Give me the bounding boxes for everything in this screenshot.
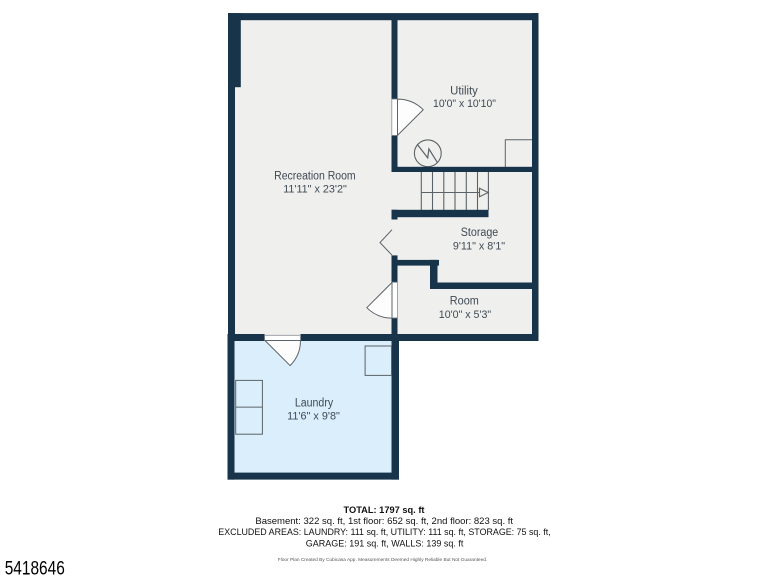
svg-text:10'0" x 5'3": 10'0" x 5'3" (439, 309, 491, 321)
svg-text:10'0" x 10'10": 10'0" x 10'10" (433, 98, 496, 110)
svg-text:Floor Plan Created By Cubicasa: Floor Plan Created By Cubicasa App. Meas… (278, 557, 487, 562)
svg-text:9'11" x 8'1": 9'11" x 8'1" (453, 240, 505, 252)
svg-text:TOTAL: 1797 sq. ft: TOTAL: 1797 sq. ft (344, 505, 425, 515)
svg-text:Basement: 322 sq. ft, 1st floo: Basement: 322 sq. ft, 1st floor: 652 sq.… (255, 516, 513, 526)
svg-text:Utility: Utility (450, 86, 478, 98)
svg-text:5418646: 5418646 (5, 558, 65, 576)
svg-text:EXCLUDED AREAS: LAUNDRY: 111 s: EXCLUDED AREAS: LAUNDRY: 111 sq. ft, UTI… (218, 527, 550, 537)
svg-text:Room: Room (450, 296, 479, 308)
svg-text:Laundry: Laundry (295, 397, 334, 409)
svg-text:GARAGE: 191 sq. ft, WALLS: 139: GARAGE: 191 sq. ft, WALLS: 139 sq. ft (306, 539, 464, 549)
svg-text:Storage: Storage (461, 227, 499, 239)
svg-text:11'11" x 23'2": 11'11" x 23'2" (283, 183, 347, 195)
svg-text:11'6" x 9'8": 11'6" x 9'8" (287, 410, 340, 422)
svg-text:Recreation Room: Recreation Room (274, 171, 356, 183)
